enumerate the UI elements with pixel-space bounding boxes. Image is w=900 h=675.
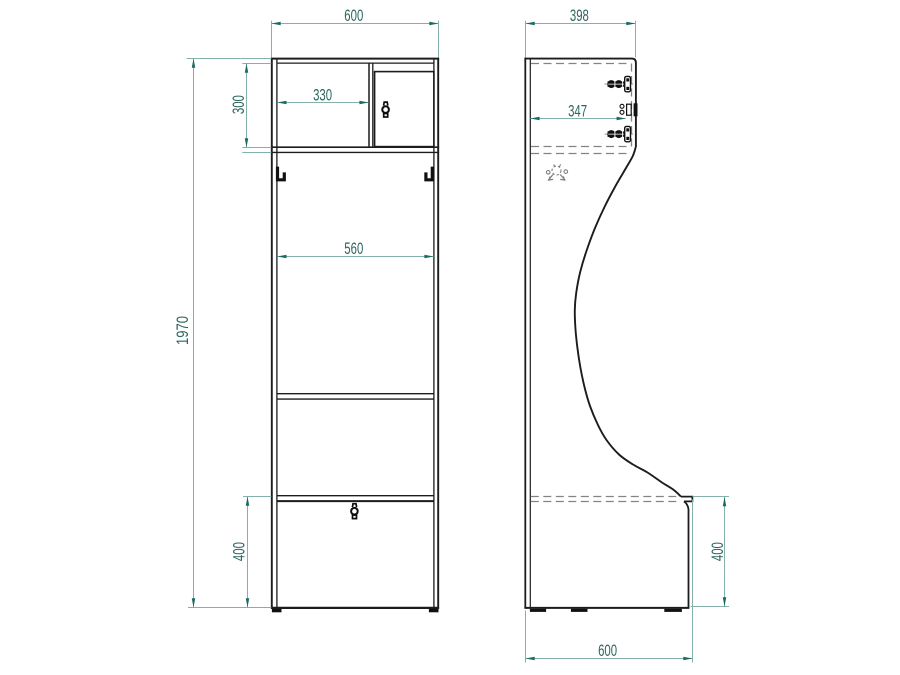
svg-text:398: 398 bbox=[570, 7, 589, 25]
svg-text:400: 400 bbox=[231, 542, 249, 561]
svg-text:600: 600 bbox=[344, 7, 363, 25]
svg-text:400: 400 bbox=[709, 542, 727, 561]
svg-text:347: 347 bbox=[568, 103, 587, 121]
svg-text:300: 300 bbox=[230, 95, 248, 114]
svg-text:1970: 1970 bbox=[174, 316, 192, 345]
svg-text:330: 330 bbox=[313, 87, 332, 105]
svg-text:600: 600 bbox=[598, 642, 617, 660]
svg-text:560: 560 bbox=[344, 240, 363, 258]
